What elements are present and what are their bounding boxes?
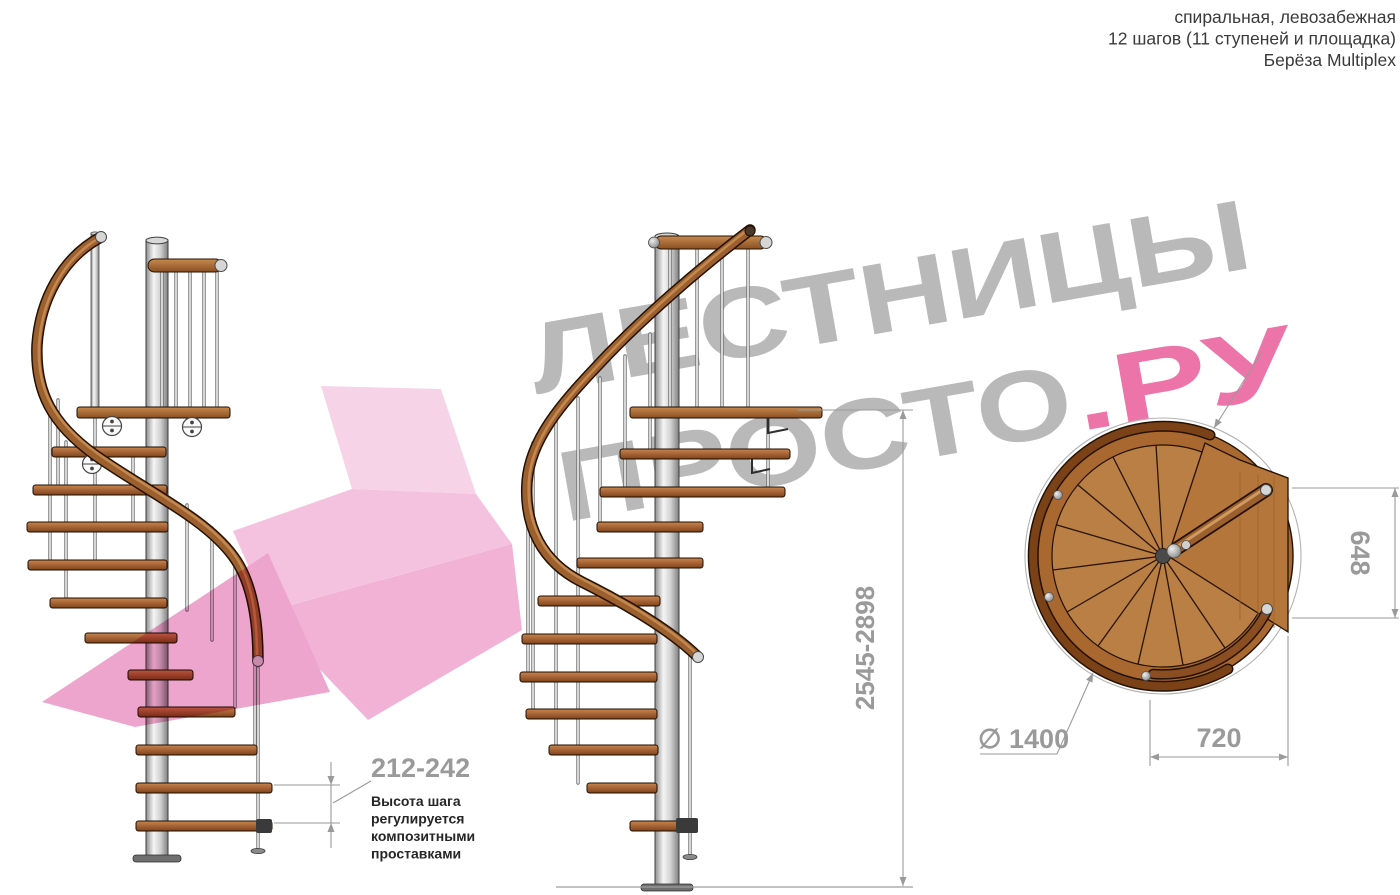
step-height-note: Высота шага регулируется композитными пр… bbox=[371, 793, 475, 862]
diameter-label: ∅ 1400 bbox=[978, 724, 1069, 754]
dimension-step-height: 212-242 Высота шага регулируется компози… bbox=[274, 753, 475, 862]
clamp bbox=[256, 819, 272, 833]
center-pole bbox=[146, 240, 168, 858]
total-height-label: 2545-2898 bbox=[850, 586, 880, 710]
landing-side-label: 648 bbox=[1345, 530, 1375, 575]
staircase-drawing: ЛЕСТНИЦЫ ПРОСТО.РУ bbox=[0, 0, 1400, 895]
landing-board bbox=[77, 407, 230, 418]
plan-view bbox=[1025, 418, 1301, 694]
svg-text:проставками: проставками bbox=[371, 846, 461, 862]
handrail-ball bbox=[1167, 544, 1181, 558]
drawing-canvas: ЛЕСТНИЦЫ ПРОСТО.РУ bbox=[0, 0, 1400, 895]
dimension-landing-side: 648 bbox=[1292, 488, 1399, 618]
pole-base bbox=[133, 855, 181, 862]
side-view-left bbox=[27, 232, 272, 863]
landing-handrail bbox=[148, 259, 222, 272]
dimension-diameter: ∅ 1400 bbox=[978, 673, 1093, 754]
clamp bbox=[676, 818, 698, 833]
svg-text:композитными: композитными bbox=[371, 828, 475, 844]
landing-width-label: 720 bbox=[1196, 723, 1241, 753]
header-line2: 12 шагов (11 ступеней и площадка) bbox=[1108, 29, 1396, 49]
header: спиральная, левозабежная 12 шагов (11 ст… bbox=[1108, 7, 1396, 70]
header-line3: Берёза Multiplex bbox=[1264, 50, 1397, 70]
logo-arrow-shapes bbox=[42, 386, 522, 727]
step-height-label: 212-242 bbox=[371, 753, 470, 783]
svg-text:регулируется: регулируется bbox=[371, 811, 464, 827]
landing-handrail bbox=[655, 236, 767, 249]
logo-facet-top bbox=[321, 386, 476, 494]
svg-text:Высота шага: Высота шага bbox=[371, 793, 461, 809]
header-line1: спиральная, левозабежная bbox=[1174, 7, 1396, 27]
landing-board bbox=[630, 407, 822, 418]
corner-post bbox=[91, 233, 99, 413]
